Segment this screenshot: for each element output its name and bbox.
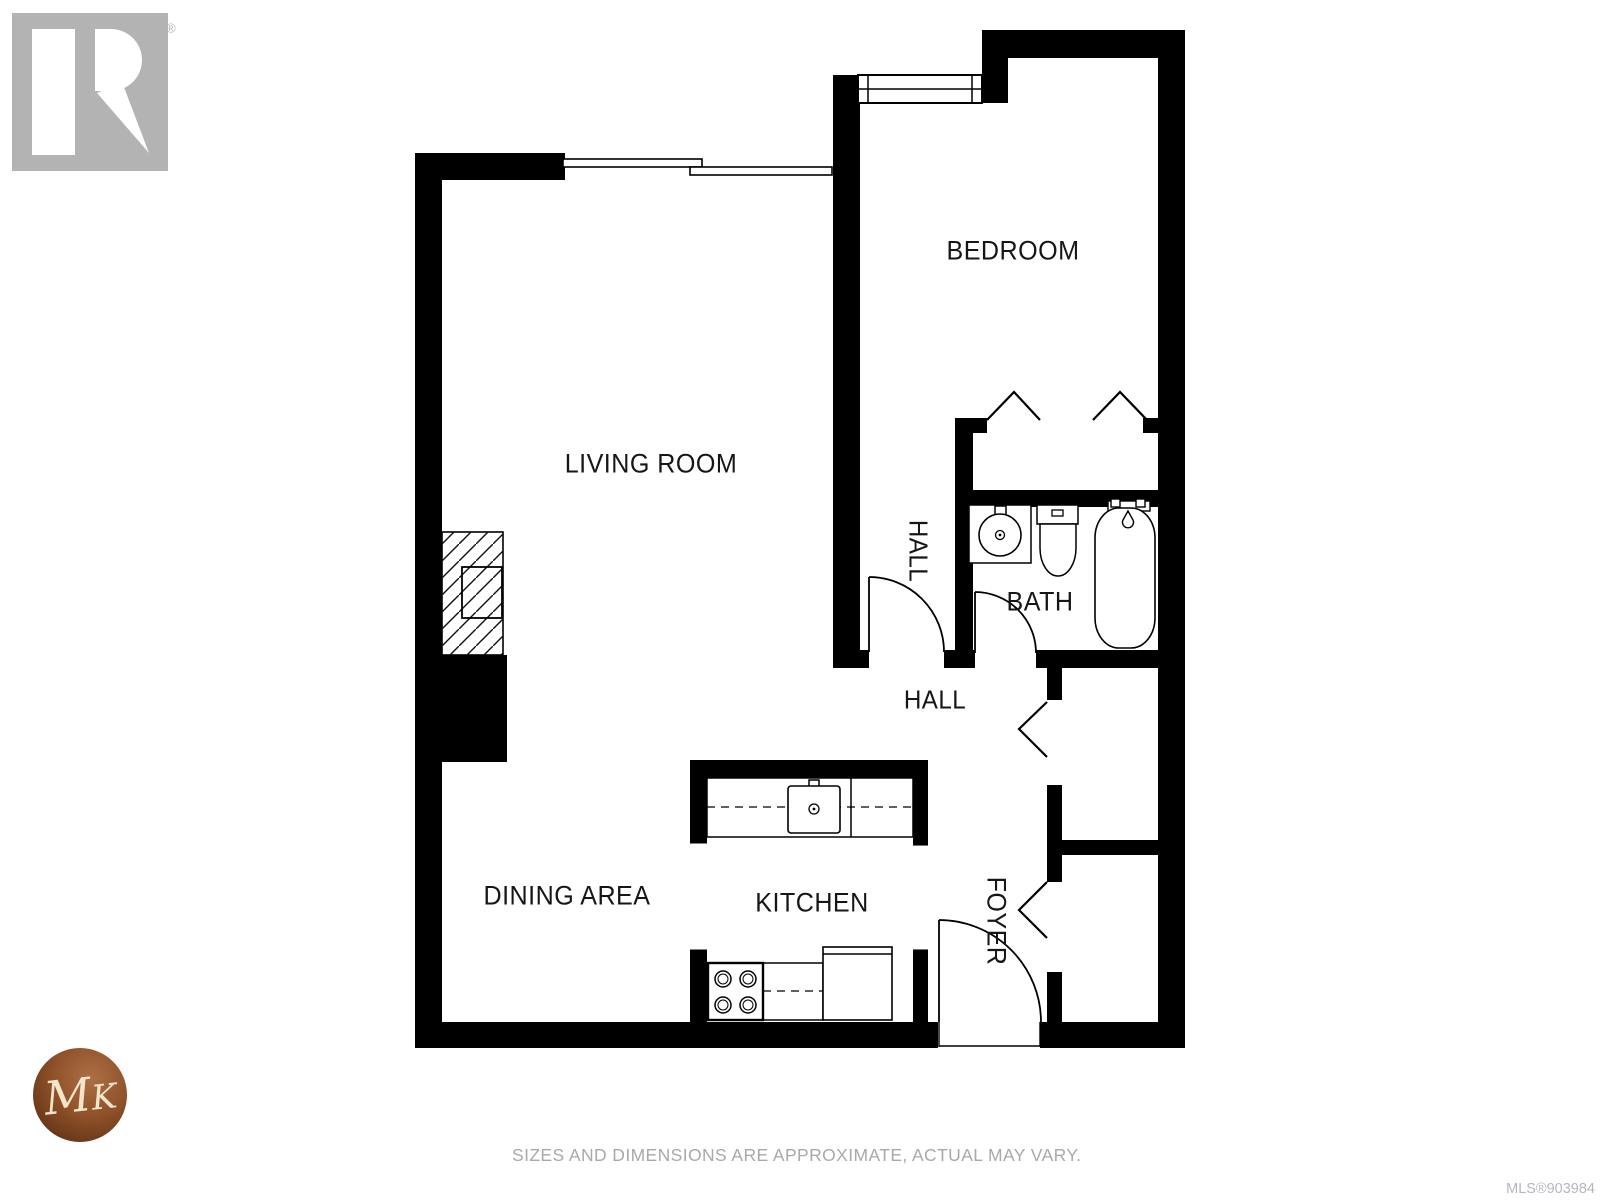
bifold-door-icon-foyer-closet <box>1019 882 1047 938</box>
wall-kitchen-east-b <box>913 950 928 1022</box>
bifold-door-icon-bedroom-left <box>987 392 1040 420</box>
wall-hall-closet-west-b <box>1047 785 1062 840</box>
wall-right-exterior <box>1158 30 1185 1048</box>
window-bedroom <box>858 75 982 103</box>
fridge-icon <box>823 947 892 1020</box>
wall-living-top <box>415 153 565 180</box>
room-label-bath: BATH <box>1007 587 1074 618</box>
room-label-living-room: LIVING ROOM <box>565 449 738 480</box>
fireplace-icon <box>442 532 503 655</box>
wall-bedroom-corner <box>982 58 1008 103</box>
wall-closet-divider <box>1047 840 1158 855</box>
toilet-icon <box>1037 505 1078 576</box>
room-label-hall-lower: HALL <box>904 685 966 716</box>
wall-kitchen-west-b <box>690 950 707 1022</box>
bathroom-sink-icon <box>969 505 1031 563</box>
bifold-door-icon-hall-closet <box>1019 702 1047 757</box>
chimney-block <box>442 655 507 762</box>
wall-hall-closet-west-a <box>1047 668 1062 700</box>
wall-bottom-exterior-left <box>415 1022 938 1048</box>
room-label-dining-area: DINING AREA <box>484 881 651 912</box>
room-label-bedroom: BEDROOM <box>946 236 1079 267</box>
wall-bedroom-closet-right <box>1143 418 1158 433</box>
realtor-logo-icon <box>12 13 168 171</box>
realtor-watermark: REALTOR® <box>12 13 182 49</box>
mk-monogram: MK <box>42 1068 119 1121</box>
wall-hall-bottom-b <box>944 650 975 668</box>
room-label-hall-upper: HALL <box>903 520 934 582</box>
bathtub-icon <box>1095 499 1155 648</box>
bifold-door-icon-bedroom-right <box>1093 392 1147 420</box>
wall-kitchen-east-a <box>913 760 928 845</box>
wall-living-hall-divider <box>833 75 860 653</box>
wall-foyer-closet-west-b <box>1047 972 1062 1022</box>
entry-threshold <box>939 1022 1040 1047</box>
wall-kitchen-west-a <box>690 760 707 843</box>
floorplan-page: BEDROOM LIVING ROOM HALL BATH HALL DININ… <box>0 0 1600 1200</box>
room-label-kitchen: KITCHEN <box>755 888 868 919</box>
wall-bedroom-top <box>982 30 1185 58</box>
mls-number: MLS®903984 <box>1506 1181 1595 1197</box>
wall-hall-bottom-a <box>833 650 869 668</box>
hall-door-swing <box>869 577 944 652</box>
floorplan-drawing <box>0 0 1600 1200</box>
disclaimer-text: SIZES AND DIMENSIONS ARE APPROXIMATE, AC… <box>512 1145 1081 1166</box>
kitchen-sink-icon <box>788 780 840 833</box>
room-label-foyer: FOYER <box>981 877 1012 966</box>
wall-hall-bottom-c <box>1036 650 1158 668</box>
wall-left-exterior <box>415 153 442 1048</box>
mk-logo: MK <box>33 1048 127 1142</box>
wall-foyer-closet-west-a <box>1047 855 1062 882</box>
wall-kitchen-top <box>690 760 928 778</box>
sliding-door <box>563 159 832 175</box>
